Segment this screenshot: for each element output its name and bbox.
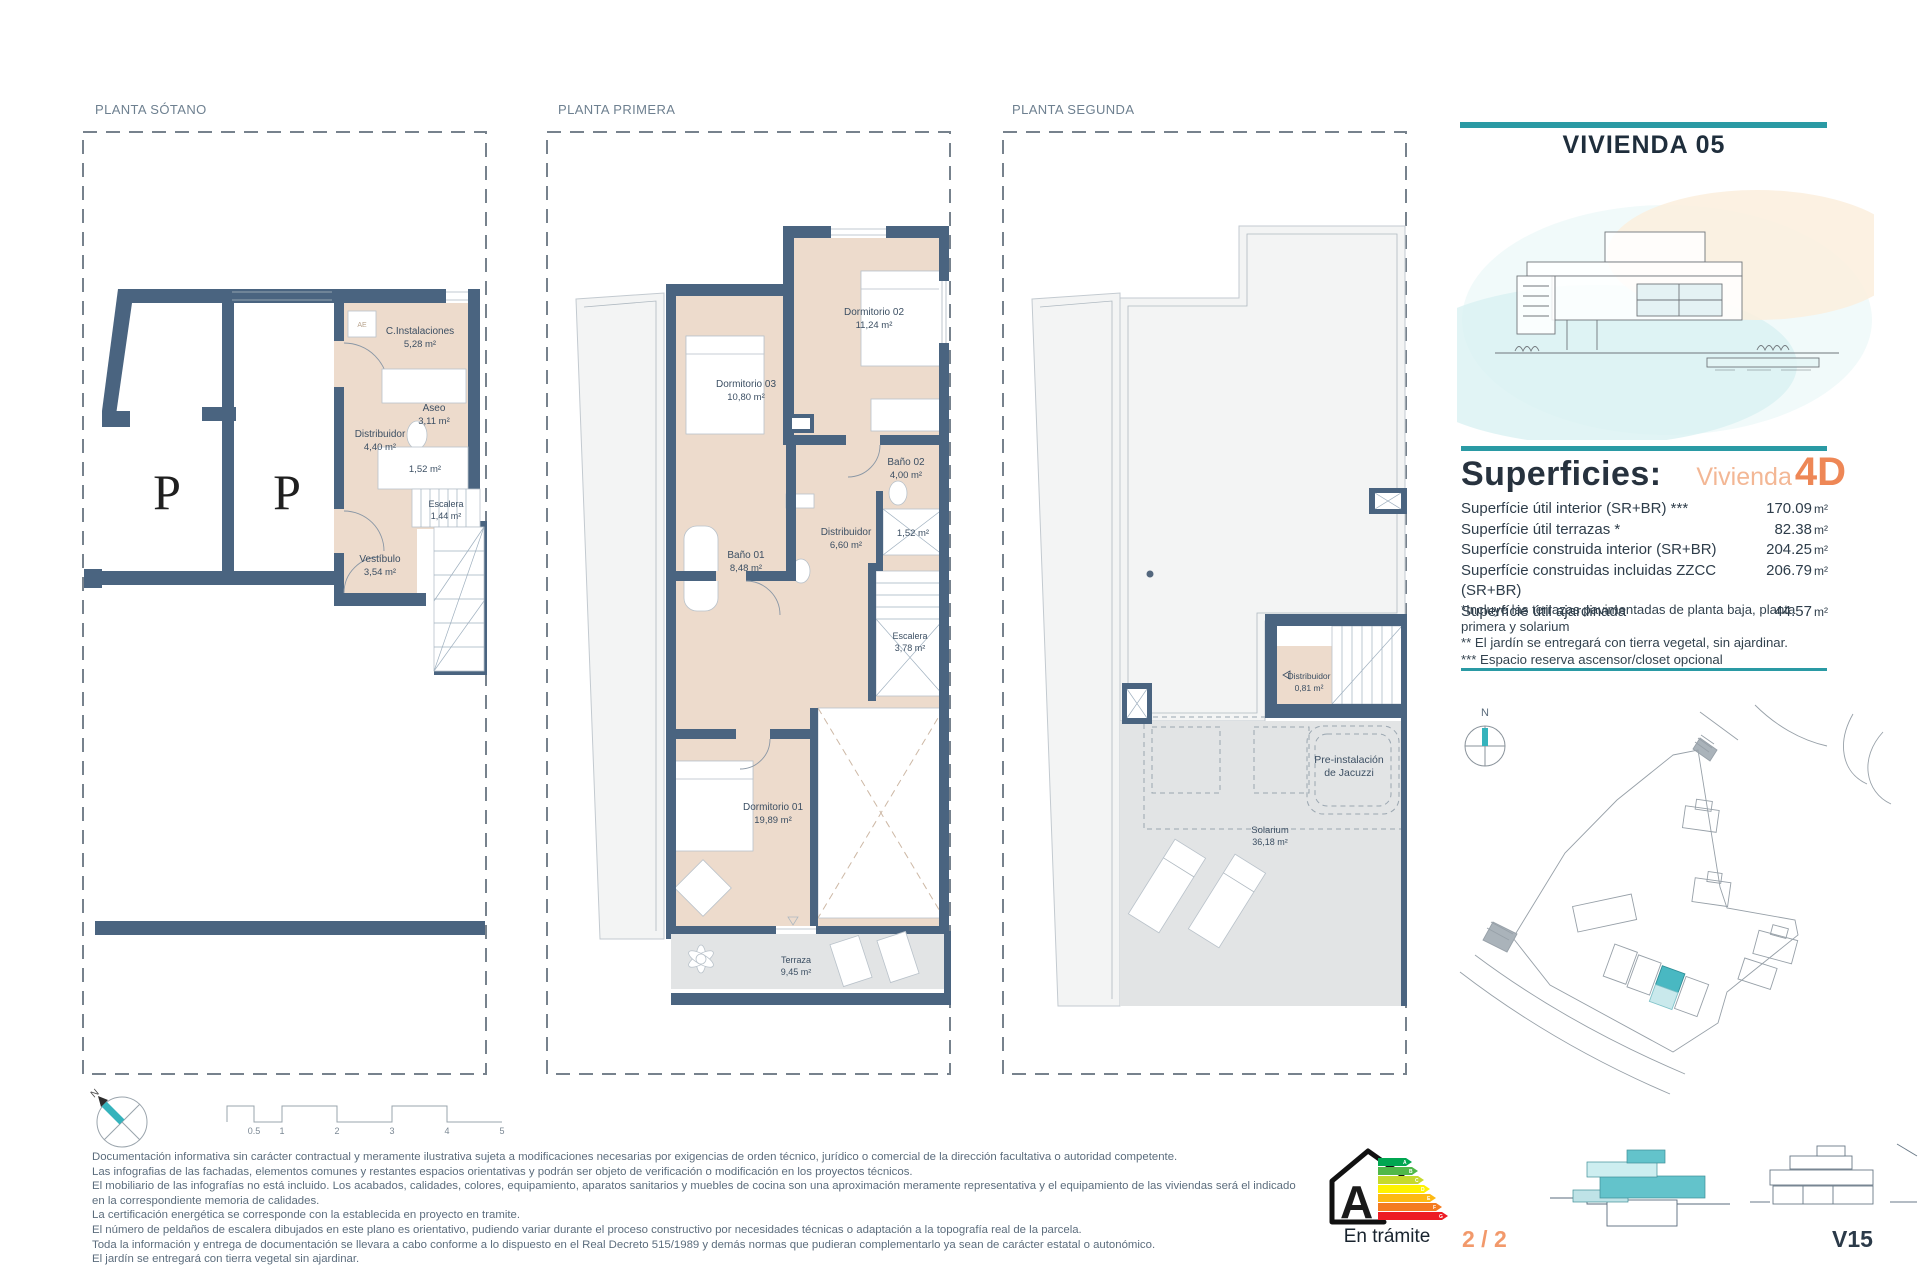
- plan-segunda-drawing: Distribuidor 0,81 m² Pre-instalación de …: [1002, 131, 1407, 1075]
- site-compass-north: N: [1481, 707, 1489, 719]
- row-unit: m²: [1814, 499, 1828, 520]
- energy-bar-letter: A: [1403, 1160, 1407, 1166]
- room-label: Baño 02: [887, 457, 925, 468]
- legal-line: Las infografias de las fachadas, element…: [92, 1165, 1304, 1180]
- superficies-accent-bar: [1461, 446, 1827, 451]
- section-highlighted: [1550, 1150, 1730, 1226]
- plan-primera: Dormitorio 02 11,24 m² Dormitorio 03 10,…: [546, 131, 951, 1075]
- scale-tick: 2: [334, 1126, 339, 1136]
- room-area: 4,00 m²: [890, 470, 922, 481]
- notes-underline-bar: [1461, 668, 1827, 671]
- room-label: Dormitorio 02: [844, 307, 904, 318]
- legal-line: El jardín se entregará con tierra vegeta…: [92, 1252, 1304, 1267]
- room-label: Distribuidor: [821, 527, 872, 538]
- room-area: 5,28 m²: [404, 339, 436, 350]
- energy-bar-letter: G: [1439, 1214, 1443, 1220]
- room-label: Baño 01: [727, 550, 765, 561]
- section-outline: [1750, 1144, 1917, 1204]
- energy-bar-letter: D: [1421, 1187, 1425, 1193]
- parking-letter-1: P: [153, 464, 181, 520]
- superficies-title: Superficies:: [1461, 455, 1662, 494]
- room-area: 3,54 m²: [364, 567, 396, 578]
- plan-title-sotano: PLANTA SÓTANO: [95, 102, 207, 117]
- room-area: 8,48 m²: [730, 563, 762, 574]
- plan-sotano-drawing: AE P P C.Instalaciones 5,28 m² Aseo 3,11…: [82, 131, 487, 1075]
- legal-line: La certificación energética se correspon…: [92, 1208, 1304, 1223]
- table-row: Superfície útil interior (SR+BR) *** 170…: [1461, 499, 1828, 520]
- room-area: 0,81 m²: [1295, 683, 1324, 693]
- villa-render-sketch: [1457, 170, 1874, 440]
- row-label: Superfície útil terrazas *: [1461, 520, 1774, 541]
- vivienda-type: 4D: [1795, 457, 1846, 487]
- table-row: Superfície construidas incluidas ZZCC (S…: [1461, 561, 1828, 602]
- note-line: *Incluye las terrazas pavimentadas de pl…: [1461, 602, 1828, 635]
- row-unit: m²: [1814, 561, 1828, 582]
- note-line: ** El jardín se entregará con tierra veg…: [1461, 635, 1828, 652]
- legal-line: Documentación informativa sin carácter c…: [92, 1150, 1304, 1165]
- energy-letter: A: [1340, 1176, 1373, 1226]
- row-value: 170.09: [1766, 499, 1812, 520]
- legal-line: El número de peldaños de escalera dibuja…: [92, 1223, 1304, 1238]
- energy-bar-letter: F: [1433, 1205, 1436, 1211]
- room-area: 1,52 m²: [897, 528, 929, 539]
- site-compass-icon: N: [1465, 707, 1505, 766]
- page-title: VIVIENDA 05: [1460, 131, 1828, 160]
- room-area: 1,52 m²: [409, 464, 441, 475]
- room-label: Vestíbulo: [359, 554, 401, 565]
- room-label: Solarium: [1251, 825, 1289, 836]
- row-label: Superfície útil interior (SR+BR) ***: [1461, 499, 1766, 520]
- room-area: 36,18 m²: [1252, 837, 1288, 847]
- room-area: 3,11 m²: [418, 416, 450, 427]
- energy-status: En trámite: [1318, 1226, 1456, 1248]
- energy-bar-letter: C: [1415, 1178, 1419, 1184]
- note-line: *** Espacio reserva ascensor/closet opci…: [1461, 652, 1828, 669]
- superficies-heading: Superficies: Vivienda 4D: [1461, 455, 1846, 494]
- scale-tick: 3: [389, 1126, 394, 1136]
- parking-letter-2: P: [273, 464, 301, 520]
- scale-tick: 4: [444, 1126, 449, 1136]
- room-area: 1,44 m²: [431, 511, 462, 521]
- room-label: Distribuidor: [355, 429, 406, 440]
- plan-reference: V15: [1832, 1226, 1873, 1253]
- row-label: Superfície construidas incluidas ZZCC (S…: [1461, 561, 1766, 602]
- room-area: 19,89 m²: [754, 815, 792, 826]
- legal-line: El mobiliario de las infografías no está…: [92, 1179, 1304, 1208]
- room-area: 6,60 m²: [830, 540, 862, 551]
- scale-tick: 5: [499, 1126, 504, 1136]
- header-accent-bar: [1460, 122, 1827, 128]
- room-area: 4,40 m²: [364, 442, 396, 453]
- table-row: Superfície construida interior (SR+BR) 2…: [1461, 540, 1828, 561]
- row-value: 204.25: [1766, 540, 1812, 561]
- vivienda-word: Vivienda: [1696, 463, 1791, 492]
- ae-label: AE: [357, 322, 367, 329]
- page-number: 2 / 2: [1462, 1226, 1507, 1253]
- room-label: Escalera: [892, 631, 927, 641]
- plan-segunda: Distribuidor 0,81 m² Pre-instalación de …: [1002, 131, 1407, 1075]
- room-area: 10,80 m²: [727, 392, 765, 403]
- row-unit: m²: [1814, 540, 1828, 561]
- room-label: Dormitorio 01: [743, 802, 803, 813]
- room-label: Terraza: [781, 955, 811, 965]
- plan-sotano: AE P P C.Instalaciones 5,28 m² Aseo 3,11…: [82, 131, 487, 1075]
- scale-tick: 1: [279, 1126, 284, 1136]
- room-area: 3,78 m²: [895, 643, 926, 653]
- room-label: Dormitorio 03: [716, 379, 776, 390]
- room-label: C.Instalaciones: [386, 326, 454, 337]
- site-plan: N: [1455, 700, 1910, 1100]
- row-label: Superfície construida interior (SR+BR): [1461, 540, 1766, 561]
- energy-scale-bars: A B C D E F G: [1378, 1158, 1448, 1220]
- plan-title-segunda: PLANTA SEGUNDA: [1012, 102, 1134, 117]
- legal-line: Toda la información y entrega de documen…: [92, 1238, 1304, 1253]
- plan-title-primera: PLANTA PRIMERA: [558, 102, 675, 117]
- table-row: Superfície útil terrazas * 82.38m²: [1461, 520, 1828, 541]
- room-area: 9,45 m²: [781, 967, 812, 977]
- scale-bar: 0.5 1 2 3 4 5: [212, 1092, 562, 1140]
- energy-certificate-icon: A A B C D E F G: [1322, 1146, 1454, 1226]
- row-unit: m²: [1814, 520, 1828, 541]
- floorplan-sheet: PLANTA SÓTANO PLANTA PRIMERA PLANTA SEGU…: [0, 0, 1920, 1280]
- row-value: 82.38: [1774, 520, 1812, 541]
- room-area: de Jacuzzi: [1324, 767, 1374, 779]
- room-label: Aseo: [423, 403, 446, 414]
- room-label: Distribuidor: [1288, 671, 1331, 681]
- room-label: Escalera: [428, 499, 463, 509]
- room-label: Pre-instalación: [1314, 754, 1384, 766]
- superficies-notes: *Incluye las terrazas pavimentadas de pl…: [1461, 602, 1828, 668]
- row-value: 206.79: [1766, 561, 1812, 582]
- scale-tick: 0.5: [248, 1126, 261, 1136]
- energy-bar-letter: B: [1409, 1169, 1413, 1175]
- room-area: 11,24 m²: [856, 320, 893, 331]
- legal-disclaimer: Documentación informativa sin carácter c…: [92, 1150, 1304, 1267]
- plan-primera-drawing: Dormitorio 02 11,24 m² Dormitorio 03 10,…: [546, 131, 951, 1075]
- compass-icon: N: [88, 1088, 152, 1152]
